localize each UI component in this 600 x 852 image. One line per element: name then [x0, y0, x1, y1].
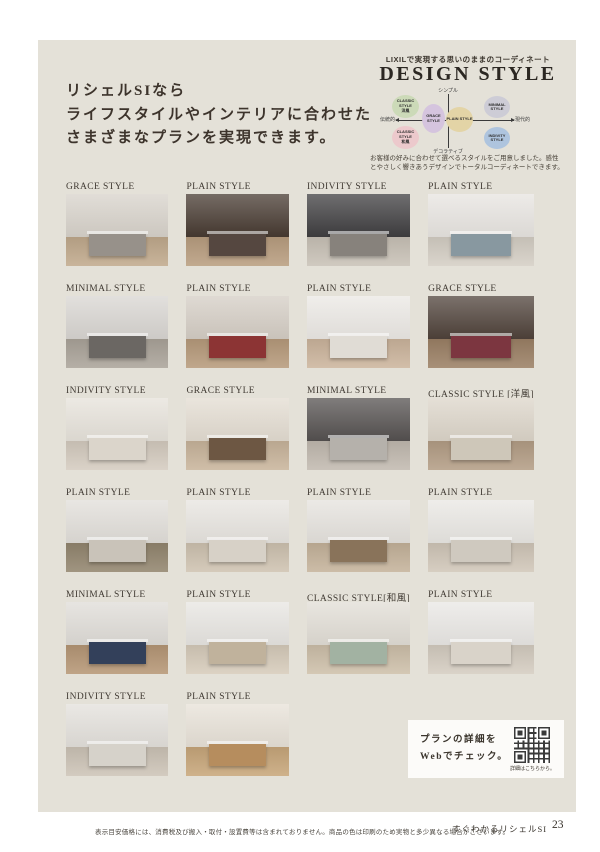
qr-caption: 詳細はこちらから。	[510, 765, 555, 772]
kitchen-photo	[186, 194, 288, 266]
gallery-item: MINIMAL STYLE	[66, 284, 168, 368]
bubble-label: CLASSIC STYLE	[392, 130, 419, 139]
gallery-item: INDIVITY STYLE	[66, 386, 168, 470]
gallery-item: PLAIN STYLE	[186, 284, 288, 368]
kitchen-photo	[66, 500, 168, 572]
photo-island	[209, 540, 266, 562]
photo-island	[209, 642, 266, 664]
style-label: MINIMAL STYLE	[307, 386, 410, 398]
gallery-item: MINIMAL STYLE	[66, 590, 168, 674]
style-label: PLAIN STYLE	[307, 488, 410, 500]
gallery-item: PLAIN STYLE	[428, 488, 534, 572]
gallery-item: GRACE STYLE	[66, 182, 168, 266]
intro-heading: リシェルSIなら ライフスタイルやインテリアに合わせた さまざまなプランを実現で…	[66, 80, 372, 151]
photo-island	[89, 336, 146, 358]
gallery-item: PLAIN STYLE	[307, 488, 410, 572]
kitchen-photo	[186, 398, 288, 470]
style-label: PLAIN STYLE	[186, 284, 288, 296]
footer-booklet-title: すぐわかるリシェルSI	[452, 823, 547, 835]
kitchen-photo	[428, 398, 534, 470]
style-bubble: CLASSIC STYLE和風	[392, 126, 419, 149]
style-label: PLAIN STYLE	[428, 590, 534, 602]
bubble-sublabel: 洋風	[402, 109, 410, 114]
style-label: PLAIN STYLE	[66, 488, 168, 500]
qr-block: 詳細はこちらから。	[510, 727, 555, 772]
gallery-item: INDIVITY STYLE	[66, 692, 168, 776]
bubble-label: GRACE STYLE	[422, 114, 445, 123]
plan-detail-box: プランの詳細を Webでチェック。 詳細はこちらから。	[408, 720, 564, 778]
photo-island	[451, 642, 510, 664]
photo-island	[89, 642, 146, 664]
style-label: GRACE STYLE	[428, 284, 534, 296]
style-label: PLAIN STYLE	[428, 488, 534, 500]
kitchen-photo	[428, 602, 534, 674]
style-label: PLAIN STYLE	[186, 488, 288, 500]
style-bubble: CLASSIC STYLE洋風	[392, 95, 419, 118]
qr-code	[514, 727, 550, 763]
plan-detail-line1: プランの詳細を	[420, 735, 497, 745]
intro-line-3: さまざまなプランを実現できます。	[66, 127, 372, 151]
photo-island	[89, 438, 146, 460]
gallery-item: PLAIN STYLE	[186, 692, 288, 776]
design-style-section: LIXILで実現する思いのままのコーディネート DESIGN STYLE シンプ…	[368, 54, 568, 186]
photo-island	[330, 438, 388, 460]
bubble-label: MINIMAL STYLE	[484, 103, 510, 112]
gallery-item: GRACE STYLE	[428, 284, 534, 368]
intro-line-2: ライフスタイルやインテリアに合わせた	[66, 104, 372, 128]
style-label: PLAIN STYLE	[186, 590, 288, 602]
gallery-item: CLASSIC STYLE[和風]	[307, 590, 410, 674]
photo-island	[209, 336, 266, 358]
style-bubble: PLAIN STYLE	[446, 107, 473, 132]
kitchen-photo	[186, 704, 288, 776]
footer-disclaimer: 表示目安価格には、消費税及び搬入・取付・設置費等は含まれておりません。商品の色は…	[95, 826, 509, 836]
style-label: PLAIN STYLE	[186, 692, 288, 704]
plan-detail-text: プランの詳細を Webでチェック。	[420, 732, 508, 766]
photo-island	[209, 438, 266, 460]
gallery-item: INDIVITY STYLE	[307, 182, 410, 266]
axis-label-traditional: 伝統的	[380, 116, 395, 123]
bubble-label: CLASSIC STYLE	[392, 99, 419, 108]
style-label: INDIVITY STYLE	[66, 692, 168, 704]
style-bubble: INDIVITY STYLE	[484, 127, 510, 149]
design-style-desc-line2: とやさしく響きあうデザインでトータルコーディネートできます。	[370, 164, 564, 171]
kitchen-photo	[186, 500, 288, 572]
style-label: PLAIN STYLE	[186, 182, 288, 194]
photo-island	[89, 744, 146, 766]
kitchen-photo	[307, 398, 410, 470]
gallery-item: GRACE STYLE	[186, 386, 288, 470]
photo-island	[451, 540, 510, 562]
style-label: GRACE STYLE	[66, 182, 168, 194]
page-number: 23	[552, 819, 564, 831]
gallery-item: PLAIN STYLE	[186, 488, 288, 572]
kitchen-photo	[307, 500, 410, 572]
kitchen-photo	[66, 194, 168, 266]
photo-island	[330, 540, 388, 562]
style-gallery: GRACE STYLEPLAIN STYLEINDIVITY STYLEPLAI…	[66, 182, 534, 776]
design-style-title: DESIGN STYLE	[368, 63, 568, 86]
style-label: MINIMAL STYLE	[66, 284, 168, 296]
style-label: CLASSIC STYLE [洋風]	[428, 386, 534, 398]
photo-island	[330, 234, 388, 256]
photo-island	[451, 336, 510, 358]
kitchen-photo	[428, 194, 534, 266]
photo-island	[330, 336, 388, 358]
style-label: PLAIN STYLE	[307, 284, 410, 296]
gallery-item: PLAIN STYLE	[428, 590, 534, 674]
style-label: GRACE STYLE	[186, 386, 288, 398]
bubble-sublabel: 和風	[402, 140, 410, 145]
kitchen-photo	[186, 296, 288, 368]
photo-island	[209, 234, 266, 256]
gallery-item: PLAIN STYLE	[428, 182, 534, 266]
kitchen-photo	[428, 500, 534, 572]
style-label: CLASSIC STYLE[和風]	[307, 590, 410, 602]
style-label: INDIVITY STYLE	[307, 182, 410, 194]
gallery-item: PLAIN STYLE	[186, 182, 288, 266]
photo-island	[89, 234, 146, 256]
photo-island	[451, 234, 510, 256]
gallery-item: MINIMAL STYLE	[307, 386, 410, 470]
bubble-label: PLAIN STYLE	[446, 117, 472, 122]
kitchen-photo	[428, 296, 534, 368]
gallery-item: CLASSIC STYLE [洋風]	[428, 386, 534, 470]
photo-island	[209, 744, 266, 766]
intro-line-1: リシェルSIなら	[66, 80, 372, 104]
design-style-diagram: シンプル デコラティブ 伝統的 現代的 CLASSIC STYLE洋風MINIM…	[380, 90, 530, 152]
kitchen-photo	[307, 194, 410, 266]
kitchen-photo	[186, 602, 288, 674]
style-label: PLAIN STYLE	[428, 182, 534, 194]
style-label: MINIMAL STYLE	[66, 590, 168, 602]
style-bubble: GRACE STYLE	[422, 104, 445, 133]
gallery-item: PLAIN STYLE	[66, 488, 168, 572]
axis-label-simple: シンプル	[438, 87, 458, 94]
kitchen-photo	[66, 296, 168, 368]
bubble-label: INDIVITY STYLE	[484, 134, 510, 143]
plan-detail-line2: Webでチェック。	[420, 752, 508, 762]
gallery-item: PLAIN STYLE	[307, 284, 410, 368]
axis-label-modern: 現代的	[515, 116, 530, 123]
design-style-description: お客様の好みに合わせて選べるスタイルをご用意しました。感性 とやさしく響きあうデ…	[370, 154, 566, 172]
style-label: INDIVITY STYLE	[66, 386, 168, 398]
photo-island	[330, 642, 388, 664]
catalog-page: リシェルSIなら ライフスタイルやインテリアに合わせた さまざまなプランを実現で…	[0, 0, 600, 852]
style-bubble: MINIMAL STYLE	[484, 96, 510, 118]
beige-panel: リシェルSIなら ライフスタイルやインテリアに合わせた さまざまなプランを実現で…	[38, 40, 576, 812]
kitchen-photo	[307, 602, 410, 674]
design-style-desc-line1: お客様の好みに合わせて選べるスタイルをご用意しました。感性	[370, 155, 559, 162]
photo-island	[451, 438, 510, 460]
photo-island	[89, 540, 146, 562]
gallery-item: PLAIN STYLE	[186, 590, 288, 674]
kitchen-photo	[66, 704, 168, 776]
kitchen-photo	[307, 296, 410, 368]
kitchen-photo	[66, 398, 168, 470]
kitchen-photo	[66, 602, 168, 674]
